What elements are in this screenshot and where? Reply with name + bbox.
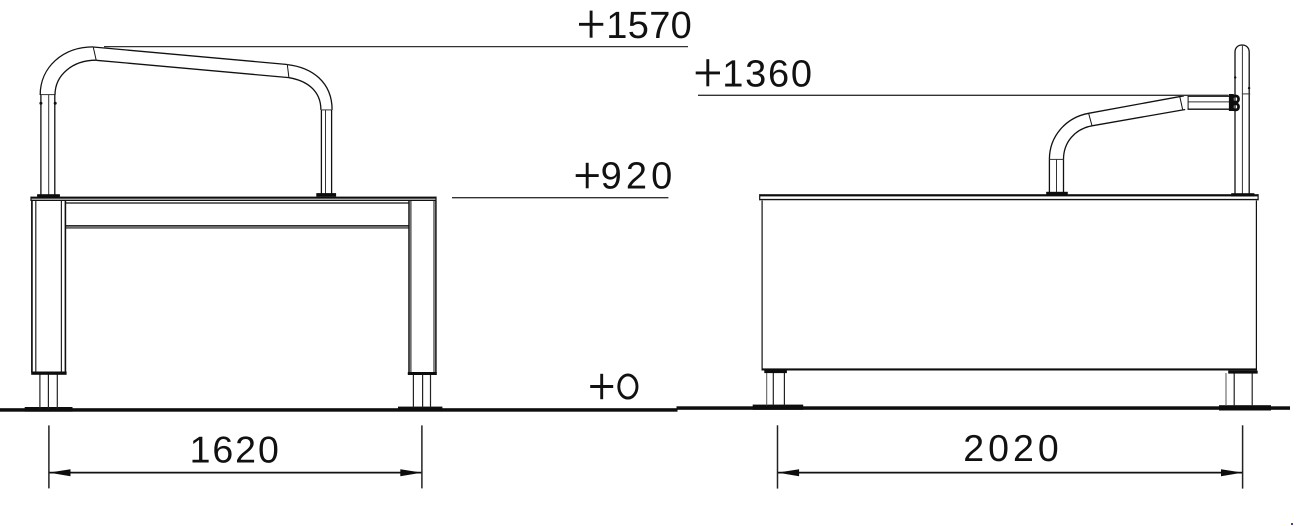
- svg-text:1360: 1360: [722, 54, 812, 96]
- svg-text:920: 920: [601, 156, 673, 198]
- svg-text:1570: 1570: [606, 5, 692, 47]
- svg-text:1620: 1620: [190, 429, 279, 471]
